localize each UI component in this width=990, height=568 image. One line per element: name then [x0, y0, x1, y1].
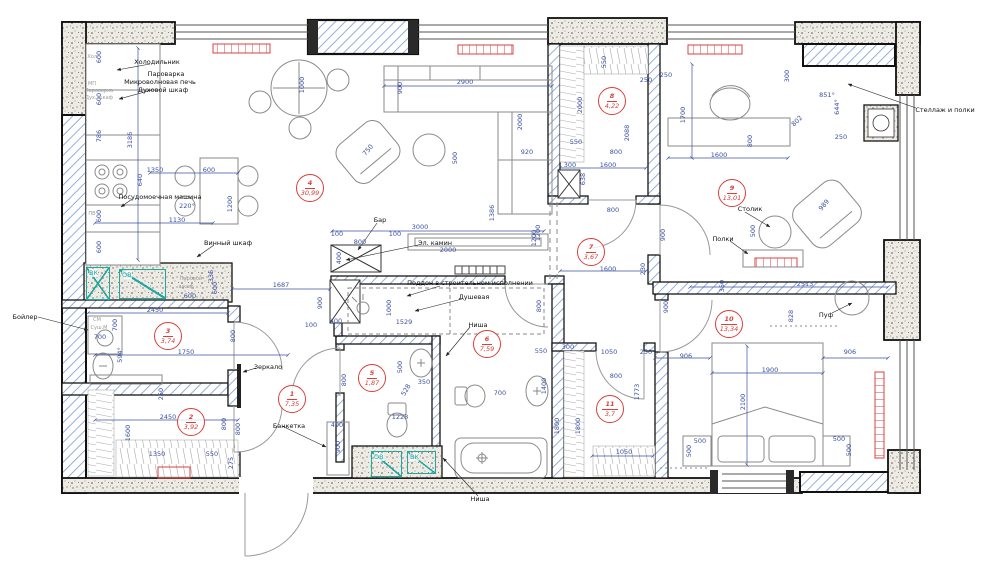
dimension-label: 1600	[124, 425, 132, 442]
dimension-label: 906	[844, 348, 856, 356]
annotation-label: Посудомоечная машина	[119, 193, 202, 201]
dimension-label: 800	[746, 135, 754, 147]
dimension-label: 400	[335, 252, 343, 264]
shaft-label: ВК	[410, 453, 419, 461]
room-number: 10	[721, 316, 736, 325]
dimension-label: 644°	[833, 99, 841, 115]
dimension-label: 2000	[576, 97, 584, 114]
room-number: 4	[305, 180, 316, 189]
dimension-label: 250	[157, 388, 165, 400]
dimension-label: 594°	[116, 347, 124, 363]
annotation-label: Поддон в строительном исполнении	[407, 279, 533, 287]
dimension-label: 600	[95, 241, 103, 253]
room-number: 5	[367, 370, 378, 379]
annotation-label: Бар	[374, 216, 387, 224]
dimension-label: 920	[521, 148, 533, 156]
dimension-label: 800	[340, 374, 348, 386]
dimension-label: 1350	[149, 450, 166, 458]
annotation-label: Пароварка	[148, 70, 185, 78]
dimension-label: 500	[694, 437, 706, 445]
dimension-label: 2000	[440, 246, 457, 254]
dimension-label: 300	[783, 70, 791, 82]
dimension-label: 400	[331, 421, 343, 429]
dimension-label: 900	[334, 441, 342, 453]
dimension-label: 220°	[179, 202, 195, 210]
dimension-label: 250	[640, 348, 652, 356]
dimension-label: 1773	[633, 384, 641, 401]
room-badge-3: 33,74	[154, 322, 182, 350]
dimension-label: 800	[610, 372, 622, 380]
dimension-label: 640	[136, 174, 144, 186]
annotation-label: Столик	[738, 205, 763, 213]
room-area: 3,67	[584, 254, 598, 261]
dimension-label: 100	[305, 321, 317, 329]
room-area: 7,35	[285, 401, 299, 408]
dimension-label: 600	[211, 282, 219, 294]
equipment-label: МП	[88, 81, 96, 87]
dimension-label: 1600	[600, 265, 617, 273]
dimension-label: 1800	[553, 418, 561, 435]
dimension-label: 828	[787, 310, 795, 322]
dimension-label: 500	[833, 435, 845, 443]
dimension-label: 528	[399, 383, 412, 398]
equipment-label: СМ	[93, 317, 101, 323]
annotation-label: Бойлер	[13, 313, 38, 321]
dimension-label: 600	[184, 292, 196, 300]
room-number: 1	[287, 391, 298, 400]
room-area: 13,34	[720, 326, 739, 333]
annotation-label: Ниша	[470, 495, 489, 503]
dimension-label: 900	[316, 297, 324, 309]
dimension-label: 2450	[147, 306, 164, 314]
equipment-label: Паровой	[180, 276, 202, 282]
dimension-label: 900	[396, 82, 404, 94]
room-badge-11: 113,7	[596, 395, 624, 423]
dimension-label: 250	[660, 71, 672, 79]
room-badge-6: 67,59	[473, 330, 501, 358]
shaft-label: ОВ	[122, 271, 132, 279]
annotation-label: Зеркало	[254, 363, 282, 371]
room-badge-9: 913,01	[718, 179, 746, 207]
room-number: 11	[602, 401, 617, 410]
dimension-label: 1687	[273, 281, 290, 289]
room-badge-10: 1013,34	[715, 310, 743, 338]
dimension-label: 100	[389, 230, 401, 238]
dimension-label: 800	[354, 238, 366, 246]
room-area: 4,22	[605, 103, 619, 110]
room-area: 1,87	[365, 380, 379, 387]
dimension-label: 906	[680, 352, 692, 360]
dimension-label: 500	[845, 444, 853, 456]
dimension-label: 800	[610, 148, 622, 156]
room-number: 8	[607, 93, 618, 102]
dimension-label: 1386	[488, 205, 496, 222]
dimension-label: 750	[361, 143, 375, 158]
room-area: 30,99	[301, 190, 320, 197]
dimension-label: 1800	[574, 418, 582, 435]
equipment-label: ПВ	[88, 211, 95, 217]
room-number: 6	[482, 336, 493, 345]
dimension-label: 550	[570, 138, 582, 146]
dimension-label: 500	[685, 445, 693, 457]
dimension-label: 1000	[298, 77, 306, 94]
annotation-label: Душевая	[459, 293, 490, 301]
annotation-label: Винный шкаф	[204, 239, 252, 247]
dimension-label: 1900	[762, 366, 779, 374]
dimension-label: 638	[579, 173, 587, 185]
dimension-label: 1000	[385, 300, 393, 317]
dimension-label: 550	[206, 450, 218, 458]
room-badge-4: 430,99	[296, 174, 324, 202]
dimension-label: 2088	[623, 125, 631, 142]
dimension-label: 800	[535, 300, 543, 312]
annotation-label: Пуф	[819, 311, 833, 319]
dimension-label: 800	[220, 418, 228, 430]
dimension-label: 1600	[600, 161, 617, 169]
dimension-label: 1400	[540, 378, 548, 395]
annotation-label: Духовой шкаф	[138, 86, 188, 94]
dimension-label: 350	[718, 280, 726, 292]
dimension-label: 802	[790, 114, 804, 128]
dimension-label: 600	[95, 210, 103, 222]
annotation-label: Ниша	[468, 321, 487, 329]
dimension-label: 700	[94, 333, 106, 341]
room-number: 9	[727, 185, 738, 194]
room-badge-8: 84,22	[598, 87, 626, 115]
shaft-ов: ОВ	[371, 451, 402, 477]
annotation-label: Микроволновая печь	[124, 78, 196, 86]
dimension-label: 1529	[396, 318, 413, 326]
dimension-label: 1700	[679, 107, 687, 124]
dimension-label: 989	[817, 198, 831, 213]
dimension-label: 275	[227, 457, 235, 469]
room-badge-5: 51,87	[358, 364, 386, 392]
dimension-label: 550	[535, 347, 547, 355]
room-area: 3,74	[161, 338, 175, 345]
floor-plan: 600600786318664060060013506001200220°113…	[0, 0, 990, 568]
equipment-label: Дух. шкаф	[85, 95, 113, 101]
dimension-label: 1750	[178, 348, 195, 356]
room-area: 7,59	[480, 346, 494, 353]
shaft-ов: ОВ	[119, 269, 166, 299]
shaft-label: ОВ	[374, 453, 384, 461]
room-area: 13,01	[723, 195, 742, 202]
annotation-label: Банкетка	[273, 422, 305, 430]
room-badge-1: 17,35	[278, 385, 306, 413]
shaft-label: ВК	[89, 269, 98, 277]
dimension-label: 600	[203, 166, 215, 174]
room-badge-2: 23,92	[177, 408, 205, 436]
annotation-label: Стеллаж и полки	[915, 106, 974, 114]
dimension-label: 3000	[412, 223, 429, 231]
equipment-label: Суш.М	[91, 325, 108, 331]
dimension-label: 2513	[797, 280, 814, 288]
annotation-label: Эл. камин	[418, 239, 452, 247]
dimension-label: 900	[662, 301, 670, 313]
dimension-label: 300	[562, 343, 574, 351]
annotation-label: Холодильник	[134, 58, 180, 66]
dimension-label: 800	[234, 423, 242, 435]
room-number: 2	[186, 414, 197, 423]
dimension-label: 550	[600, 56, 608, 68]
dimension-label: 851°	[819, 91, 835, 99]
dimension-label: 2450	[160, 413, 177, 421]
dimension-label: 2000	[516, 114, 524, 131]
dimension-label: 250	[640, 76, 652, 84]
equipment-label: Хол.	[87, 54, 98, 60]
dimension-label: 700	[111, 319, 119, 331]
dimension-label: 336	[207, 270, 215, 282]
dimension-label: 500	[451, 152, 459, 164]
shaft-вк: ВК	[407, 451, 436, 474]
dimension-label: 1050	[616, 448, 633, 456]
room-number: 3	[163, 328, 174, 337]
dimension-label: 400	[330, 317, 342, 325]
dimension-label: 800	[607, 206, 619, 214]
dimension-label: 1200	[226, 196, 234, 213]
dimension-label: 230	[639, 263, 647, 275]
equipment-label: Пароварка	[85, 88, 113, 94]
dimension-label: 1130	[169, 216, 186, 224]
dimension-label: 300	[564, 161, 576, 169]
dimension-label: 500	[396, 361, 404, 373]
room-area: 3,92	[184, 424, 198, 431]
room-area: 3,7	[605, 411, 615, 418]
dimension-label: 700	[494, 389, 506, 397]
dimension-label: 800	[229, 330, 237, 342]
dimension-label: 1050	[601, 348, 618, 356]
dimension-label: 350	[418, 378, 430, 386]
dimension-label: 900	[659, 229, 667, 241]
dimension-label: 2900	[457, 78, 474, 86]
room-number: 7	[586, 244, 597, 253]
dimension-label: 1600	[711, 151, 728, 159]
dimension-label: 3186	[126, 132, 134, 149]
dimension-label: 1228	[392, 413, 409, 421]
text-overlay: 600600786318664060060013506001200220°113…	[0, 0, 990, 568]
room-badge-7: 73,67	[577, 238, 605, 266]
shaft-вк: ВК	[86, 267, 110, 300]
dimension-label: 1200	[530, 230, 538, 247]
dimension-label: 2100	[739, 394, 747, 411]
equipment-label: шкаф	[179, 284, 194, 290]
dimension-label: 500	[749, 225, 757, 237]
dimension-label: 100	[331, 230, 343, 238]
dimension-label: 250	[835, 133, 847, 141]
annotation-label: Полки	[712, 235, 733, 243]
dimension-label: 786	[95, 130, 103, 142]
dimension-label: 1350	[147, 166, 164, 174]
